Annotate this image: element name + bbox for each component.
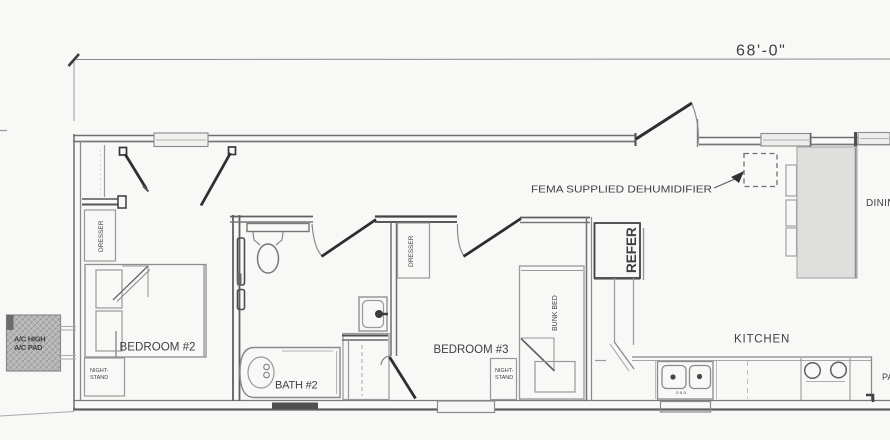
svg-text:STAND: STAND: [495, 375, 513, 381]
svg-text:NIGHT-: NIGHT-: [90, 368, 109, 374]
svg-text:BEDROOM #3: BEDROOM #3: [434, 342, 509, 356]
svg-text:NIGHT-: NIGHT-: [495, 368, 514, 374]
svg-text:A/C PAD: A/C PAD: [14, 343, 43, 352]
svg-text:DRESSER: DRESSER: [408, 235, 415, 267]
svg-text:BATH #2: BATH #2: [275, 380, 317, 392]
svg-text:REFER: REFER: [624, 227, 639, 273]
svg-text:STAND: STAND: [90, 375, 108, 381]
svg-text:KITCHEN: KITCHEN: [734, 334, 790, 346]
svg-text:FEMA SUPPLIED DEHUMIDIFIER: FEMA SUPPLIED DEHUMIDIFIER: [531, 184, 712, 196]
svg-text:DRESSER: DRESSER: [98, 220, 105, 252]
svg-text:PAN: PAN: [882, 372, 890, 382]
svg-text:o o o: o o o: [676, 390, 687, 395]
svg-text:BUNK BED: BUNK BED: [552, 295, 559, 331]
svg-text:DINING: DINING: [866, 198, 890, 209]
svg-text:68'-0": 68'-0": [736, 43, 786, 60]
svg-text:BEDROOM #2: BEDROOM #2: [120, 340, 196, 354]
